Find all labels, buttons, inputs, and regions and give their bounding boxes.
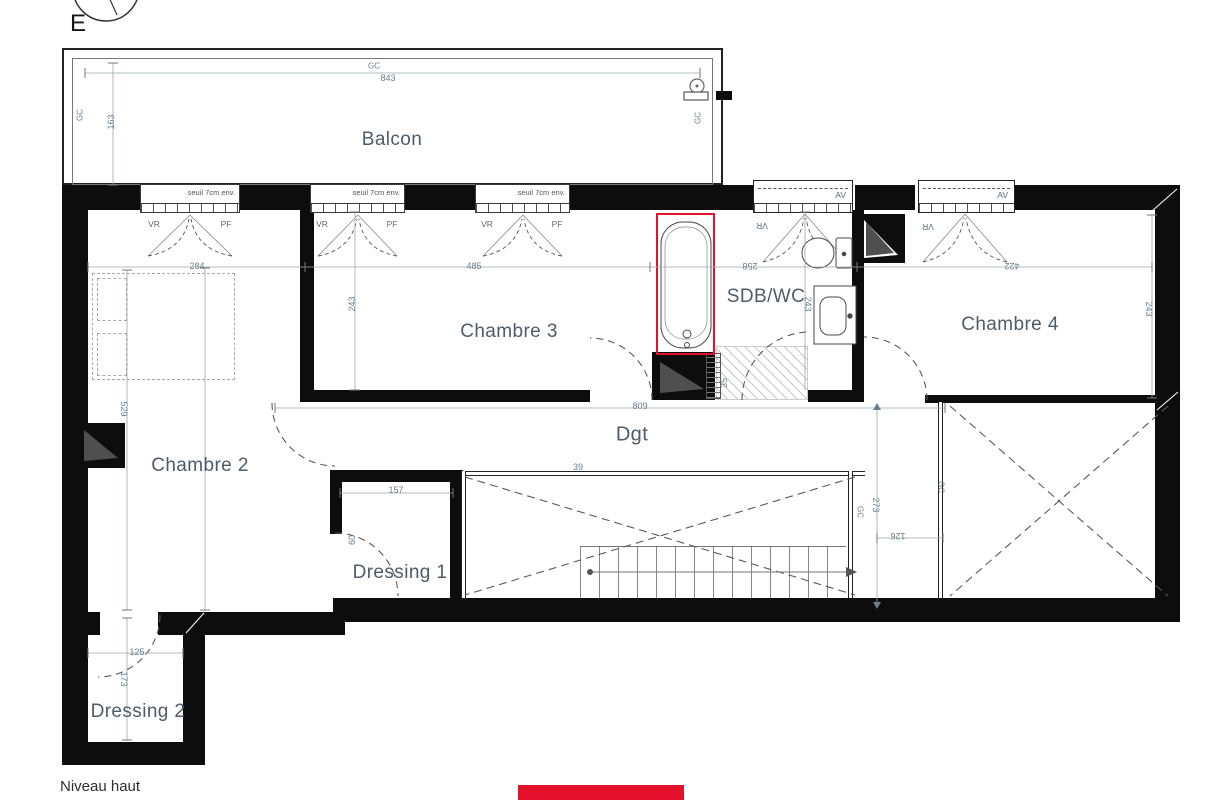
shutter-label-vr: VR [481, 219, 493, 229]
dim-dressing2-width: 125 [129, 647, 144, 657]
dim-ch4-width: 422 [1004, 261, 1019, 271]
dim-ch3-width: 485 [466, 261, 481, 271]
room-label-chambre3: Chambre 3 [460, 321, 558, 343]
floor-plan: seuil 7cm env. seuil 7cm env. seuil 7cm … [0, 0, 1215, 800]
dim-dressing1-door: 60 [347, 535, 357, 545]
dim-ch3-height: 243 [347, 296, 357, 311]
plan-vector-overlay [0, 0, 1215, 800]
void-x-marks [465, 406, 1168, 596]
dim-dressing2-height: 173 [119, 671, 129, 686]
shutter-label-vr: VR [922, 222, 934, 232]
orientation-label: E [70, 10, 86, 38]
sink-vanity [814, 286, 856, 344]
dim-gc: GC [856, 506, 865, 518]
dim-ch4-height: 243 [1144, 301, 1154, 316]
dim-gc: GC [76, 109, 85, 121]
shutter-label-pf: PF [221, 219, 232, 229]
shutter-label-vr: VR [316, 219, 328, 229]
dim-gc: GC [694, 112, 703, 124]
room-label-dressing2: Dressing 2 [91, 701, 186, 723]
dim-gc: GC [937, 481, 946, 493]
dim-void: 39 [573, 462, 583, 472]
balcony-drain-icon [690, 79, 704, 93]
bathtub [661, 222, 711, 348]
dim-sdb-height: 243 [803, 296, 813, 311]
shutter-label-vr: VR [756, 221, 768, 231]
dim-shower-strip: 35 [719, 378, 729, 388]
room-label-chambre2: Chambre 2 [151, 455, 249, 477]
dim-sdb-width: 258 [742, 261, 757, 271]
room-label-dressing1: Dressing 1 [353, 562, 448, 584]
room-label-balcon: Balcon [362, 129, 423, 151]
room-label-dgt: Dgt [616, 424, 648, 447]
dim-corridor-height: 273 [871, 497, 881, 512]
room-label-chambre4: Chambre 4 [961, 314, 1059, 336]
brand-red-bar [518, 785, 684, 800]
dim-dgt-width: 809 [632, 401, 647, 411]
stair-walkline [587, 567, 857, 577]
dim-balcony-width: 843 [380, 73, 395, 83]
dim-corridor-width: 126 [890, 531, 905, 541]
dim-ch2-width: 284 [189, 261, 204, 271]
balcony-bench [684, 92, 708, 100]
shutter-label-vr: VR [148, 219, 160, 229]
dimension-ticks [85, 63, 1157, 740]
shutter-label-pf: PF [387, 219, 398, 229]
door-swings [98, 332, 927, 677]
dimension-lines [85, 63, 1152, 740]
room-label-sdb: SDB/WC [727, 286, 805, 308]
dim-gc: GC [368, 62, 380, 71]
level-label: Niveau haut [60, 778, 140, 795]
dim-dressing1-width: 157 [388, 485, 403, 495]
toilet [802, 238, 852, 268]
dim-balcony-depth: 163 [106, 114, 116, 129]
dim-ch2-height: 529 [119, 401, 129, 416]
shutter-label-pf: PF [552, 219, 563, 229]
